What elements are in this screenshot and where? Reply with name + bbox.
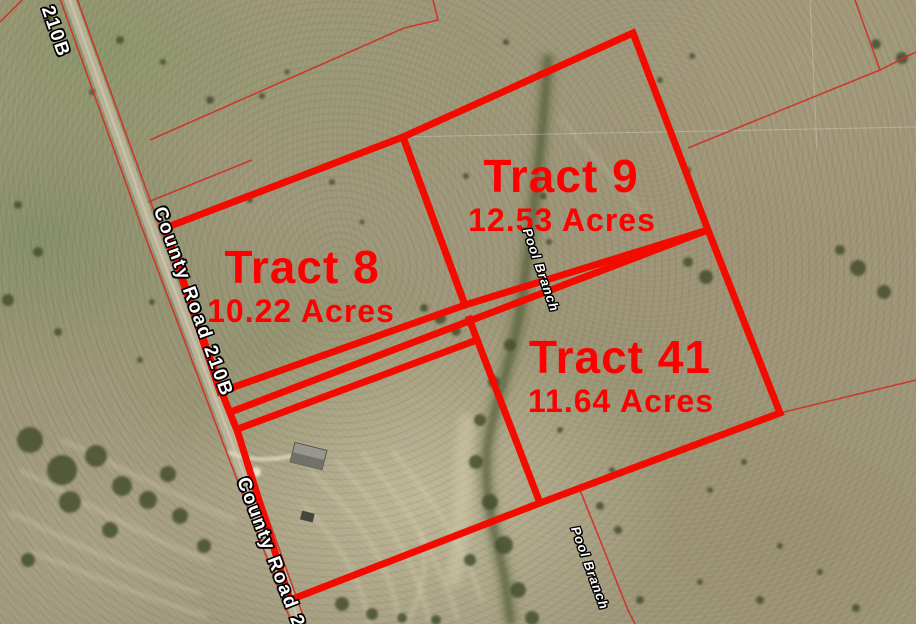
tract-41-acres: 11.64 Acres [528,385,714,417]
map-overlay-graphics [0,0,916,624]
corner-parcel-line [0,0,22,22]
north-parcel-line-2 [148,160,252,202]
tract-9-acres: 12.53 Acres [468,204,656,236]
tract-41-label: Tract 41 [529,334,711,380]
northeast-parcel-line [688,0,880,148]
aerial-tract-map: Tract 9 12.53 Acres Tract 8 10.22 Acres … [0,0,916,624]
east-parcel-line [780,380,916,413]
north-parcel-line [150,0,438,140]
access-lane-line-lower [235,340,477,430]
faint-section-lines [400,0,916,148]
tract-8-label: Tract 8 [224,244,379,290]
tract-9-label: Tract 9 [483,153,638,199]
tract-8-acres: 10.22 Acres [207,295,395,327]
